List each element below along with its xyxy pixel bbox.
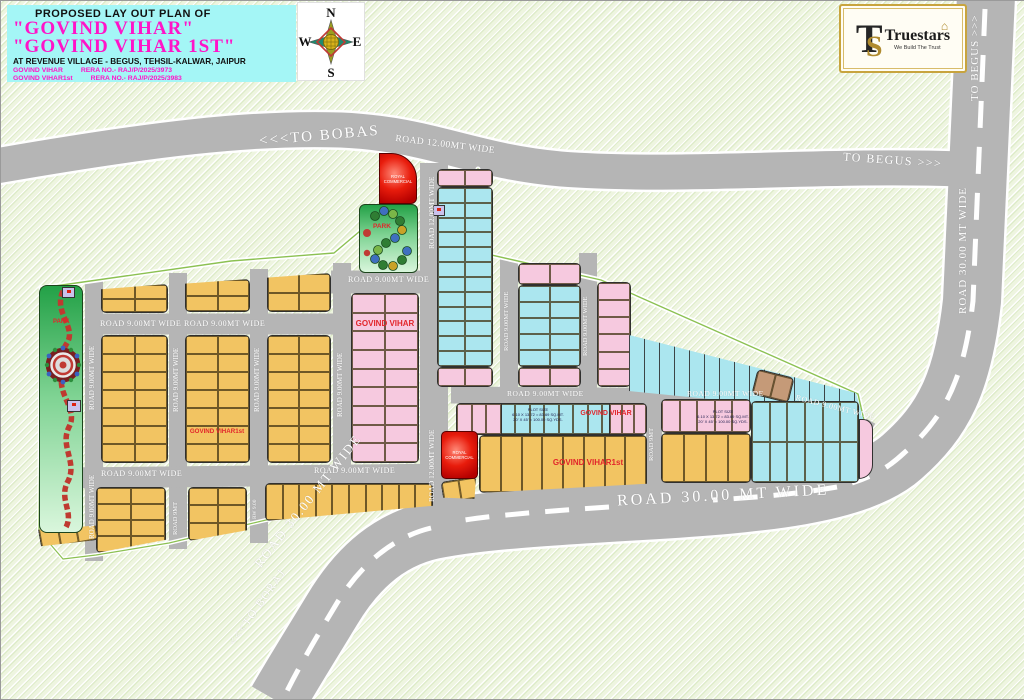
plot-cell: [519, 286, 550, 302]
plot-block: [96, 487, 166, 553]
royal-commercial-south: ROYAL COMMERCIAL: [441, 431, 478, 479]
plot-block: [518, 285, 581, 367]
plot-cell: [135, 299, 168, 313]
plot-cell: [366, 484, 383, 520]
road-label-r9mt-v: ROAD 9MT: [172, 493, 179, 535]
plot-cell: [385, 406, 418, 425]
plot-cell: [218, 336, 250, 354]
plot-cell: [465, 232, 492, 247]
road-label-rw9-v: RW 9.00: [252, 489, 258, 519]
road-label-to-begus-v: TO BEGUS >>>: [969, 11, 981, 101]
plot-cell: [135, 285, 168, 299]
plot-cell: [135, 426, 168, 444]
plot-cell: [840, 442, 858, 482]
plot-cell: [787, 442, 805, 482]
plot-cell: [519, 318, 550, 334]
plot-cell: [472, 404, 487, 434]
plot-cell: [610, 404, 622, 434]
plot-cell: [102, 372, 135, 390]
plot-cell: [218, 390, 250, 408]
plot-cell: [268, 274, 299, 293]
rera-2-number: RERA NO.- RAJ/P/2025/3983: [91, 75, 182, 82]
plot-cell: [97, 520, 131, 536]
plot-cell: [465, 336, 492, 351]
plot-block: [518, 367, 581, 387]
park-central: [359, 204, 418, 273]
plot-cell: [131, 504, 165, 520]
plot-cell: [385, 331, 418, 350]
plot-cell: [465, 321, 492, 336]
plot-cell: [268, 390, 299, 408]
plot-cell: [299, 408, 330, 426]
project-name-2: "GOVIND VIHAR 1ST": [13, 38, 290, 56]
plot-cell: [588, 404, 603, 434]
road-label-r9-v: ROAD 9.00MT WIDE: [503, 289, 510, 351]
road-label-r30-east: ROAD 30.00 MT WIDE: [957, 149, 969, 314]
compass-rose: N E S W: [297, 2, 365, 81]
plot-size-note: PLOT SIZE 6.10 X 13.72 = 83.69 SQ.MT. 20…: [691, 409, 755, 424]
plot-cell: [102, 408, 135, 426]
plot-block: [101, 284, 168, 313]
plot-cell: [465, 292, 492, 307]
plot-block: [185, 279, 250, 312]
plot-cell: [550, 264, 581, 284]
plot-cell: [135, 444, 168, 462]
road-label-to-bobas: <<<TO BOBAS: [258, 123, 380, 150]
plot-cell: [438, 321, 465, 336]
road-label-r9-v: ROAD 9.00MT WIDE: [88, 467, 96, 539]
plot-cell: [186, 444, 218, 462]
plot-cell: [438, 232, 465, 247]
plot-cell: [131, 520, 165, 536]
plot-block: [518, 263, 581, 285]
compass-graphic: N E S W: [298, 3, 364, 80]
plot-cell: [135, 336, 168, 354]
plot-cell: [385, 369, 418, 388]
plot-cell: [186, 408, 218, 426]
plot-cell: [399, 484, 416, 520]
plot-cell: [218, 354, 250, 372]
plot-cell: [752, 442, 770, 482]
govind-vihar-1st-label: GOVIND VIHAR1st: [529, 458, 647, 467]
road-label-to-boraj: <<<TO BORAJ: [227, 567, 289, 648]
utility-square-2: [67, 400, 81, 412]
road-label-to-begus-h: TO BEGUS >>>: [843, 150, 943, 172]
plot-cell: [385, 443, 418, 462]
plot-cell: [662, 434, 684, 482]
logo-tagline: We Build The Trust: [885, 45, 950, 51]
plot-cell: [519, 334, 550, 350]
plot-cell: [550, 368, 581, 386]
road-label-r9-v: ROAD 9.00MT WIDE: [88, 334, 96, 410]
plot-cell: [550, 334, 581, 350]
govind-vihar-1st-label: GOVIND VIHAR1st: [183, 428, 251, 435]
road-label-r9mt-v: ROAD 9MT: [648, 419, 655, 461]
plot-cell: [352, 294, 385, 313]
plot-cell: [186, 390, 218, 408]
plot-cell: [102, 285, 135, 299]
road-label-r9-h: ROAD 9.00MT WIDE: [184, 319, 265, 328]
plot-cell: [805, 442, 823, 482]
plot-cell: [438, 292, 465, 307]
plot-block: [101, 335, 168, 463]
plot-cell: [299, 390, 330, 408]
plot-cell: [268, 408, 299, 426]
plot-cell: [706, 434, 728, 482]
plot-cell: [385, 294, 418, 313]
plot-block: [267, 273, 331, 312]
plot-cell: [186, 354, 218, 372]
road-label-r9-h: ROAD 9.00MT WIDE: [101, 469, 182, 478]
plot-cell: [299, 372, 330, 390]
plot-cell: [684, 434, 706, 482]
plot-cell: [299, 274, 330, 293]
logo-name: Truestars ⌂: [885, 27, 950, 45]
plot-cell: [486, 404, 501, 434]
plot-cell: [352, 331, 385, 350]
road-label-r9-v: ROAD 9.00MT WIDE: [253, 346, 261, 412]
govind-vihar-label: GOVIND VIHAR: [351, 319, 419, 328]
plot-cell: [218, 444, 250, 462]
plot-cell: [519, 350, 550, 366]
plot-cell: [352, 387, 385, 406]
house-icon: ⌂: [941, 19, 948, 34]
plot-cell: [519, 264, 550, 284]
plot-cell: [102, 354, 135, 372]
plot-cell: [465, 262, 492, 277]
plot-cell: [352, 369, 385, 388]
plot-cell: [465, 218, 492, 233]
plot-cell: [438, 307, 465, 322]
plot-cell: [218, 408, 250, 426]
road-label-r12-top: ROAD 12.00MT WIDE: [395, 134, 496, 156]
road-label-r12-v: ROAD 12.00MT WIDE: [427, 174, 436, 249]
plot-cell: [299, 426, 330, 444]
plot-cell: [268, 354, 299, 372]
plot-cell: [438, 262, 465, 277]
plot-cell: [299, 444, 330, 462]
road-label-r30-south: ROAD 30.00 MT WIDE: [617, 481, 830, 510]
plot-cell: [186, 296, 218, 312]
plot-cell: [299, 336, 330, 354]
plot-cell: [823, 442, 841, 482]
plot-cell: [598, 352, 630, 369]
plot-cell: [266, 484, 283, 520]
plot-cell: [787, 402, 805, 442]
plot-cell: [438, 351, 465, 366]
plot-cell: [438, 368, 465, 386]
plot-cell: [598, 283, 630, 300]
rera-line-1: GOVIND VIHAR RERA NO.- RAJ/P/2025/3973: [13, 67, 290, 74]
plot-cell: [135, 390, 168, 408]
plot-cell: [465, 247, 492, 262]
logo-monogram-s: S: [866, 29, 883, 65]
plot-cell: [352, 350, 385, 369]
plot-block: [661, 433, 751, 483]
plot-cell: [465, 277, 492, 292]
plot-cell: [218, 488, 247, 505]
plot-cell: [770, 442, 788, 482]
plot-cell: [573, 404, 588, 434]
plot-cell: [102, 336, 135, 354]
logo-text-group: Truestars ⌂ We Build The Trust: [885, 27, 950, 51]
plot-cell: [598, 300, 630, 317]
plot-block: [267, 335, 331, 463]
plot-cell: [268, 444, 299, 462]
plot-cell: [438, 218, 465, 233]
plot-cell: [352, 406, 385, 425]
road-label-r9-v: ROAD 9.00MT WIDE: [336, 351, 344, 417]
plot-cell: [131, 536, 165, 552]
plot-cell: [622, 404, 634, 434]
title-block: PROPOSED LAY OUT PLAN OF "GOVIND VIHAR" …: [7, 5, 296, 82]
plot-cell: [438, 247, 465, 262]
plot-cell: [218, 280, 250, 296]
plot-cell: [131, 488, 165, 504]
govind-vihar-label: GOVIND VIHAR: [571, 410, 641, 417]
project-address: AT REVENUE VILLAGE - BEGUS, TEHSIL-KALWA…: [13, 57, 290, 66]
compass-n: N: [326, 5, 336, 20]
compass-s: S: [327, 65, 334, 80]
plot-cell: [465, 351, 492, 366]
compass-w: W: [299, 34, 312, 49]
plot-cell: [218, 372, 250, 390]
plot-cell: [457, 404, 472, 434]
plot-block: [597, 282, 631, 387]
road-label-r9-v: ROAD 9.00MT WIDE: [172, 346, 180, 412]
plot-cell: [268, 336, 299, 354]
plot-cell: [634, 404, 646, 434]
plot-block: [437, 187, 493, 367]
plot-cell: [550, 302, 581, 318]
plot-cell: [382, 484, 399, 520]
plot-cell: [480, 436, 501, 492]
plot-cell: [299, 354, 330, 372]
plot-size-yd: 20' X 45' = 100.00 SQ.YDS.: [503, 417, 573, 422]
plot-cell: [102, 299, 135, 313]
plot-cell: [268, 372, 299, 390]
plot-size-note: PLOT SIZE 6.10 X 13.72 = 83.69 SQ.MT. 20…: [503, 407, 573, 422]
plot-size-yd: 20' X 45' = 100.00 SQ.YDS.: [691, 419, 755, 424]
plot-cell: [102, 426, 135, 444]
plot-cell: [438, 188, 465, 203]
plot-cell: [186, 280, 218, 296]
plot-cell: [501, 436, 522, 492]
royal-commercial-north: ROYAL COMMERCIAL: [379, 153, 417, 204]
plot-cell: [438, 336, 465, 351]
plot-cell: [97, 536, 131, 552]
plot-cell: [550, 286, 581, 302]
plot-cell: [189, 488, 218, 505]
builder-logo: TS Truestars ⌂ We Build The Trust: [839, 4, 967, 73]
plot-cell: [186, 372, 218, 390]
rera-line-2: GOVIND VIHAR1st RERA NO.- RAJ/P/2025/398…: [13, 75, 290, 82]
road-label-r12-v: ROAD 12.00MT WIDE: [427, 434, 436, 502]
plot-cell: [550, 318, 581, 334]
plot-cell: [268, 293, 299, 312]
plot-cell: [135, 372, 168, 390]
road-label-r9-h: ROAD 9.00MT WIDE: [314, 466, 395, 475]
park-west-label: PARK: [53, 319, 70, 325]
plot-block: [859, 419, 873, 479]
road-label-r9-h: ROAD 9.00MT WIDE: [348, 275, 429, 284]
plot-cell: [385, 387, 418, 406]
logo-monogram: TS: [856, 21, 883, 57]
plot-cell: [465, 170, 492, 186]
plot-cell: [299, 293, 330, 312]
plot-cell: [135, 354, 168, 372]
road-label-r9-h: ROAD 9.00MT WIDE: [100, 319, 181, 328]
plot-cell: [465, 307, 492, 322]
plot-cell: [438, 170, 465, 186]
plot-cell: [218, 523, 247, 540]
plot-block: [437, 169, 493, 187]
rera-1-project: GOVIND VIHAR: [13, 67, 63, 74]
plot-cell: [598, 317, 630, 334]
park-central-label: PARK: [373, 223, 391, 230]
plot-cell: [189, 505, 218, 522]
layout-plan-sheet: PARK PARK ROYAL COMMERCIAL ROYAL COMMERC…: [0, 0, 1024, 700]
road-label-r9-h: ROAD 9.00MT WIDE: [507, 389, 584, 398]
plot-cell: [728, 434, 750, 482]
plot-cell: [550, 350, 581, 366]
plot-block: [185, 335, 250, 463]
plot-cell: [598, 369, 630, 386]
plot-cell: [102, 444, 135, 462]
plot-cell: [97, 504, 131, 520]
plot-cell: [662, 400, 680, 432]
utility-square-1: [62, 287, 75, 298]
plot-block: [609, 403, 647, 435]
plot-cell: [189, 523, 218, 540]
plot-cell: [218, 296, 250, 312]
plot-cell: [97, 488, 131, 504]
plot-block: [441, 476, 480, 503]
plot-cell: [186, 336, 218, 354]
road-label-r9-h: ROAD 9.00MT WIDE: [687, 389, 764, 398]
plot-cell: [385, 350, 418, 369]
plot-cell: [385, 425, 418, 444]
plot-cell: [268, 426, 299, 444]
rera-1-number: RERA NO.- RAJ/P/2025/3973: [81, 67, 172, 74]
road-label-r9-v: ROAD 9.00MT WIDE: [582, 294, 589, 356]
plot-cell: [770, 402, 788, 442]
plot-block: [188, 487, 247, 541]
plot-cell: [332, 484, 349, 520]
plot-cell: [458, 477, 478, 499]
plot-cell: [218, 505, 247, 522]
plot-cell: [135, 408, 168, 426]
plot-cell: [519, 302, 550, 318]
compass-e: E: [353, 34, 362, 49]
plot-block: [437, 367, 493, 387]
plot-cell: [598, 334, 630, 351]
plot-cell: [519, 368, 550, 386]
plot-cell: [465, 203, 492, 218]
plot-cell: [465, 188, 492, 203]
plot-cell: [465, 368, 492, 386]
plot-cell: [438, 277, 465, 292]
plot-cell: [102, 390, 135, 408]
plot-cell: [349, 484, 366, 520]
rera-2-project: GOVIND VIHAR1st: [13, 75, 73, 82]
